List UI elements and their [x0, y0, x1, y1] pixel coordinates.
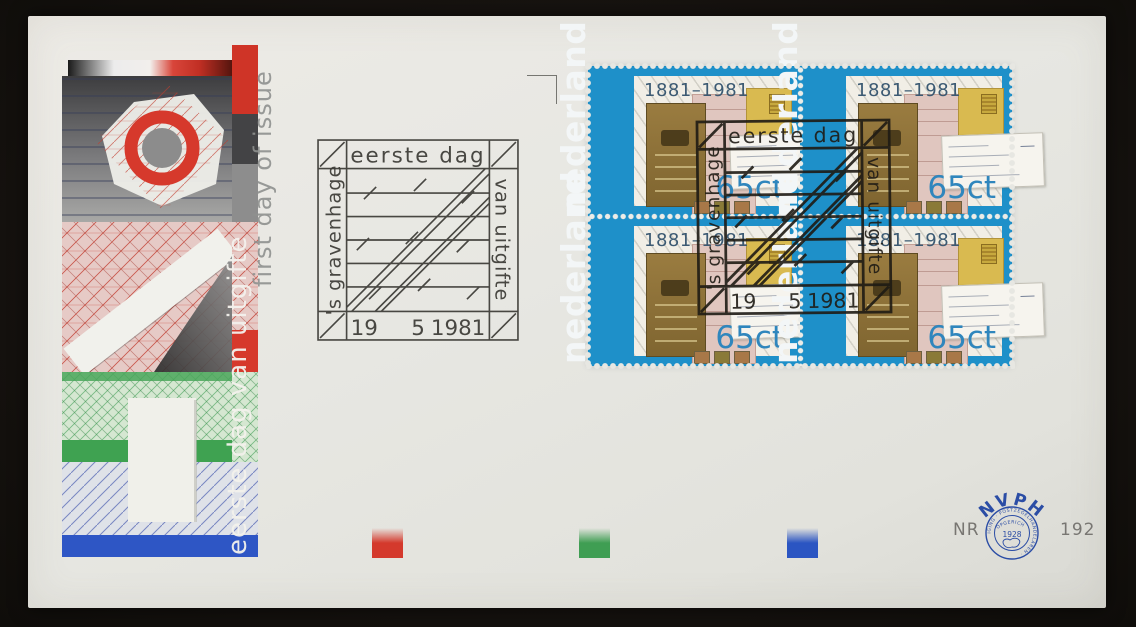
postmark-date-day: 19	[351, 316, 378, 341]
stamp-years: 1881–1981	[644, 80, 749, 101]
perforation-edge-top	[585, 62, 1015, 70]
color-bar-blue	[787, 528, 818, 558]
postmark-date-year: 1981	[431, 316, 485, 341]
coat-of-arms	[661, 130, 689, 146]
first-day-postmark-stamps: eerste dag 's gravenhage van uitgifte 19…	[694, 118, 894, 316]
perforation-edge-right	[1008, 63, 1016, 369]
postmark-date-day: 19	[730, 290, 756, 314]
artwork-pink-band	[62, 222, 238, 372]
postmark-date-year: 1981	[807, 288, 860, 313]
stamp-value: 65ct	[927, 170, 996, 206]
netherlands-map-outline	[1003, 538, 1020, 547]
postmark-date-month: 5	[788, 289, 801, 313]
color-bar-red	[372, 528, 403, 558]
caption-first-day-of-issue: first day of issue	[249, 70, 277, 287]
nvph-seal: NVPH · VEREENIGING · POSTZEGELHANDELAREN…	[975, 485, 1049, 569]
first-day-postmark-envelope: eerste dag 's gravenhage van uitgifte 19…	[316, 138, 520, 342]
postmark-top-text: eerste dag	[350, 143, 485, 168]
corner-registration-mark	[527, 75, 557, 104]
svg-text:NVPH: NVPH	[975, 490, 1048, 523]
stamp-value: 65ct	[927, 320, 996, 356]
catalog-number: 192	[1060, 520, 1095, 540]
color-bar-green	[579, 528, 610, 558]
perforation-edge-bottom	[585, 362, 1015, 370]
cachet-artwork: eerste dag van uitgifte first day of iss…	[58, 44, 288, 559]
postmark-right-text: van uitgifte	[863, 157, 885, 275]
artwork-white-rect	[128, 398, 197, 522]
artwork-gradient-bar	[68, 60, 232, 76]
envelope: eerste dag van uitgifte first day of iss…	[28, 16, 1106, 608]
postmark-right-text: van uitgifte	[491, 179, 514, 302]
seal-founded-year: 1928	[1002, 530, 1021, 539]
photo-background: { "scene": { "background_color": "#17131…	[0, 0, 1136, 627]
postmark-date-month: 5	[411, 316, 425, 341]
stamp-years: 1881–1981	[856, 80, 961, 101]
postmark-top-text: eerste dag	[728, 123, 858, 148]
postmark-left-text: 's gravenhage	[322, 165, 345, 316]
perforation-edge-left	[584, 63, 592, 369]
nvph-logo-text: NVPH	[975, 490, 1048, 523]
artwork-grey-panel	[62, 76, 232, 222]
postmark-left-text: 's gravenhage	[703, 145, 726, 290]
